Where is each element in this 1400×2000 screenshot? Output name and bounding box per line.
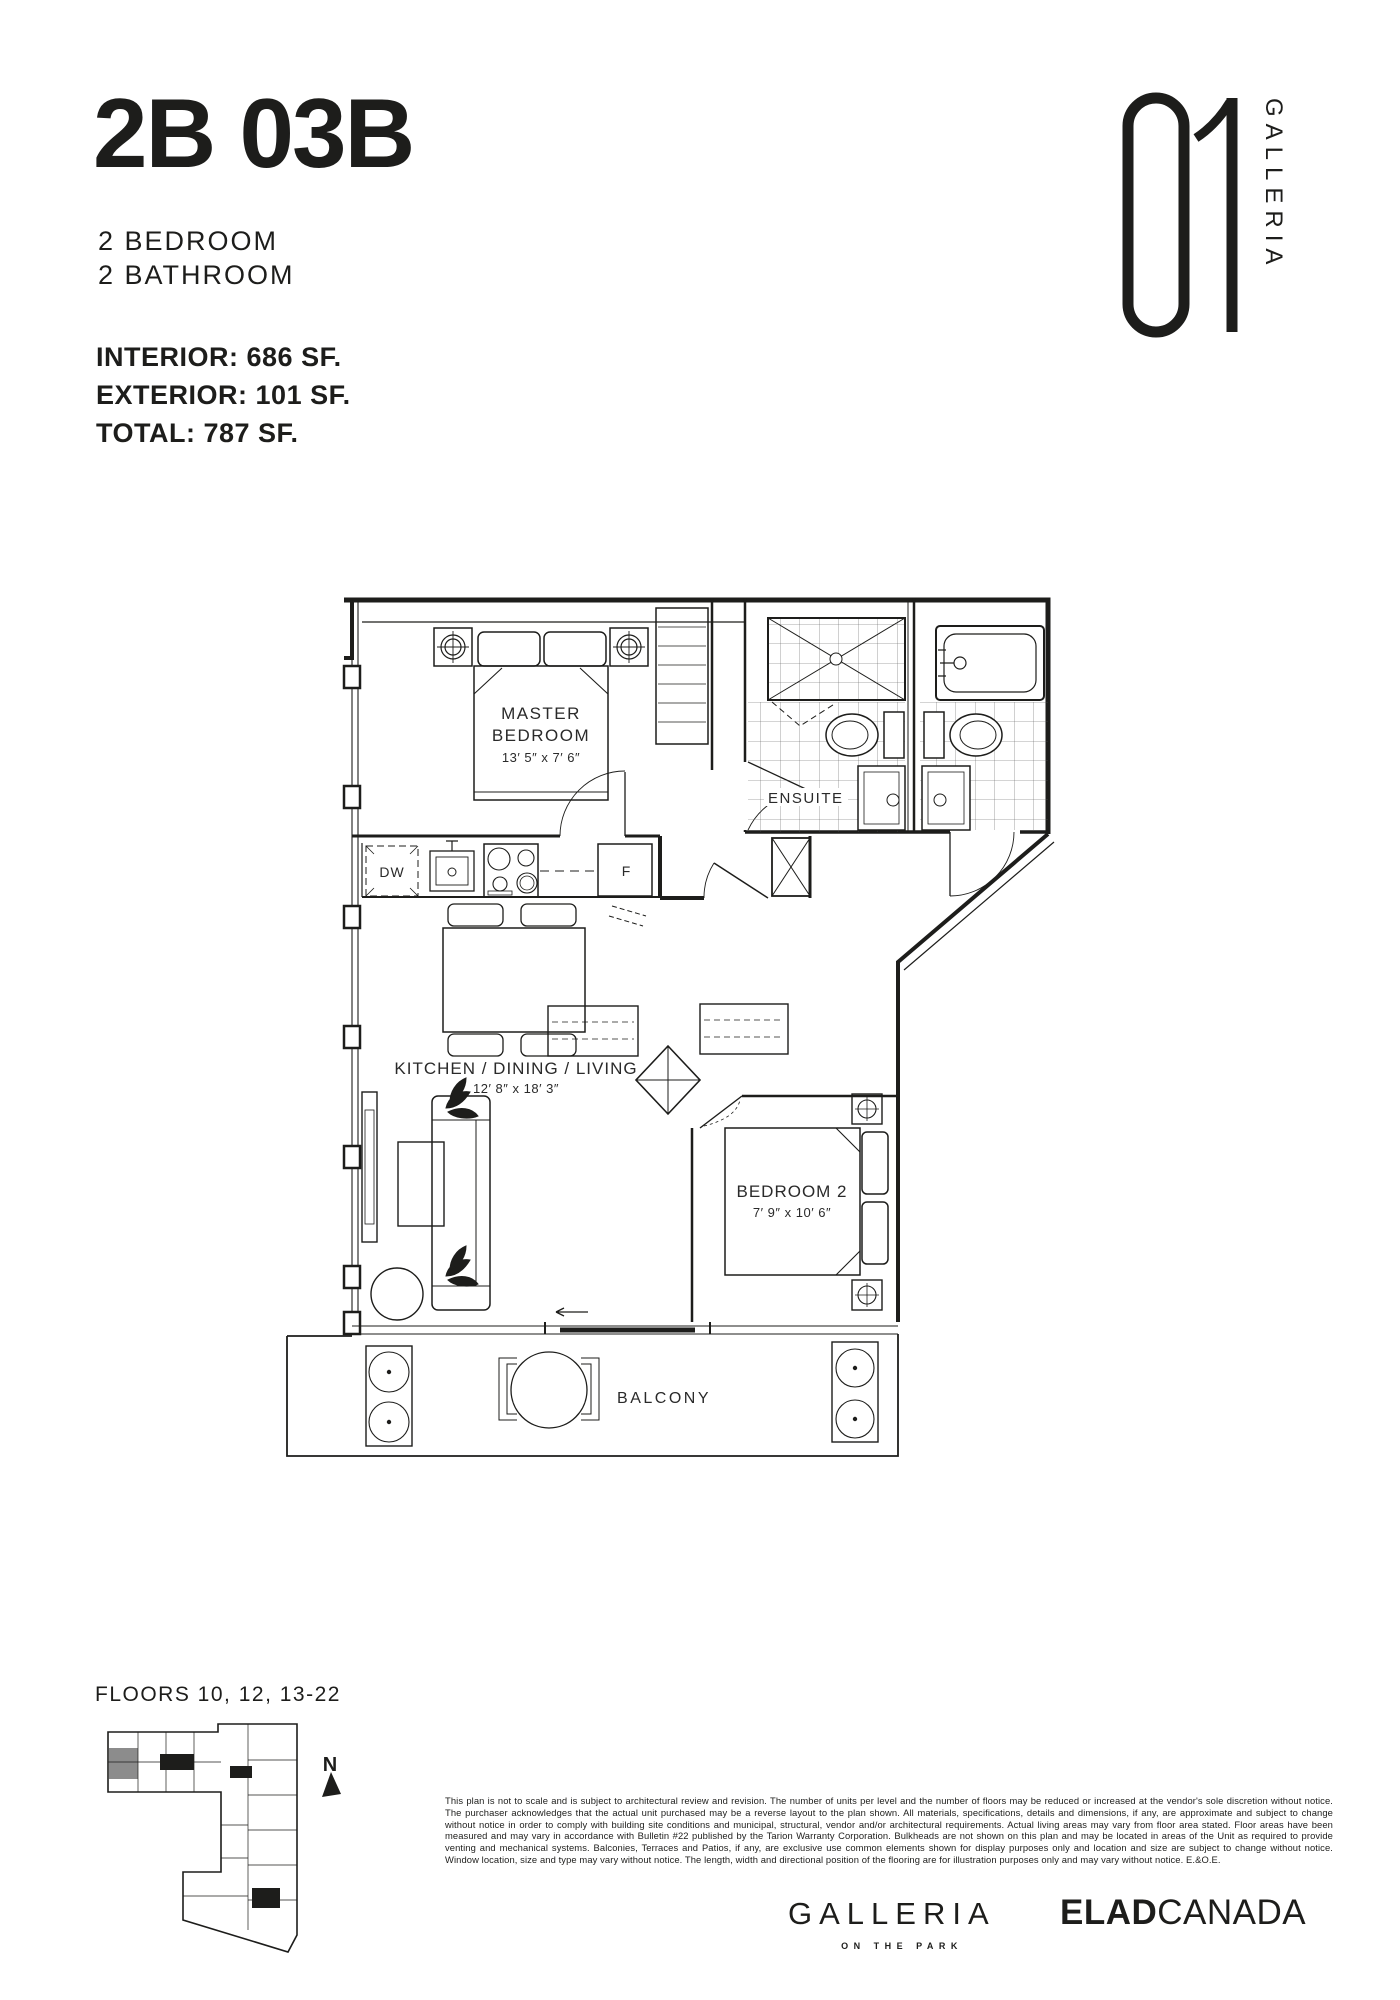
- planter-right: [832, 1342, 878, 1442]
- kitchen: [362, 841, 660, 897]
- tv-console: [362, 1092, 377, 1242]
- bathtub: [936, 626, 1044, 700]
- legal-disclaimer: This plan is not to scale and is subject…: [445, 1795, 1333, 1866]
- total-area: TOTAL: 787 SF.: [96, 414, 351, 452]
- bathroom-2: [920, 626, 1048, 830]
- floorplan-drawing: MASTER BEDROOM 13′ 5″ x 7′ 6″: [270, 580, 1080, 1480]
- logo-01-icon: [1120, 90, 1250, 340]
- fridge-label: F: [622, 863, 631, 879]
- window-wall: [344, 600, 360, 1334]
- stove: [484, 844, 538, 897]
- bedroom-2: [725, 1094, 888, 1310]
- bedroom2-dims: 7′ 9″ x 10′ 6″: [753, 1205, 831, 1220]
- entry-closet: [772, 838, 810, 896]
- planter-left: [366, 1346, 412, 1446]
- master-bedroom-label-2: BEDROOM: [492, 726, 590, 745]
- bedroom2-label: BEDROOM 2: [736, 1182, 847, 1201]
- elad-canada-logo: ELADCANADA: [1060, 1893, 1306, 1933]
- master-closet: [656, 608, 708, 744]
- area-stats: INTERIOR: 686 SF. EXTERIOR: 101 SF. TOTA…: [96, 338, 351, 452]
- keyplan-unit-highlight: [109, 1748, 138, 1779]
- balcony-table-set: [499, 1352, 599, 1428]
- bedroom-count: 2 BEDROOM: [98, 224, 295, 258]
- bathroom-count: 2 BATHROOM: [98, 258, 295, 292]
- north-label: N: [323, 1754, 337, 1776]
- keyplan-drawing: N: [92, 1712, 348, 1970]
- coffee-table: [398, 1142, 444, 1226]
- nightstand-lamp-left: [434, 628, 472, 666]
- pouf: [371, 1268, 423, 1320]
- ensuite-toilet: [826, 712, 904, 758]
- kitchen-dining-living-label: KITCHEN / DINING / LIVING: [394, 1059, 637, 1078]
- elad-bold: ELAD: [1060, 1893, 1157, 1932]
- balcony-label: BALCONY: [617, 1390, 711, 1407]
- bath2-vanity: [922, 766, 970, 830]
- bath2-toilet: [924, 712, 1002, 758]
- master-bedroom-label-1: MASTER: [501, 704, 581, 723]
- kitchen-dining-living-dims: 12′ 8″ x 18′ 3″: [473, 1081, 559, 1096]
- ensuite-label: ENSUITE: [768, 790, 844, 807]
- kitchen-sink: [430, 841, 474, 891]
- slide-arrow: [556, 1308, 588, 1316]
- plant-decor-bottom: [446, 1246, 478, 1286]
- exterior-area: EXTERIOR: 101 SF.: [96, 376, 351, 414]
- canada-light: CANADA: [1157, 1893, 1306, 1932]
- master-bedroom-dims: 13′ 5″ x 7′ 6″: [502, 750, 580, 765]
- floorplan-page: 2B 03B 2 BEDROOM 2 BATHROOM INTERIOR: 68…: [0, 0, 1400, 2000]
- unit-type: 2 BEDROOM 2 BATHROOM: [98, 224, 295, 292]
- galleria-wordmark: GALLERIA: [788, 1896, 1028, 1932]
- bed2-lamp-bottom: [852, 1280, 882, 1310]
- living-room: [362, 1078, 490, 1320]
- balcony: [287, 1308, 898, 1456]
- dining-set: [443, 904, 585, 1056]
- interior-area: INTERIOR: 686 SF.: [96, 338, 351, 376]
- galleria-tagline: ON THE PARK: [788, 1941, 1016, 1951]
- dishwasher-label: DW: [379, 864, 404, 880]
- bed2: [725, 1128, 888, 1275]
- floors-label: FLOORS 10, 12, 13-22: [95, 1683, 341, 1707]
- unit-code-title: 2B 03B: [93, 84, 413, 182]
- logo-galleria-vertical: GALLERIA: [1256, 98, 1290, 338]
- nightstand-lamp-right: [610, 628, 648, 666]
- bed2-lamp-top: [852, 1094, 882, 1124]
- ensuite-vanity: [858, 766, 905, 830]
